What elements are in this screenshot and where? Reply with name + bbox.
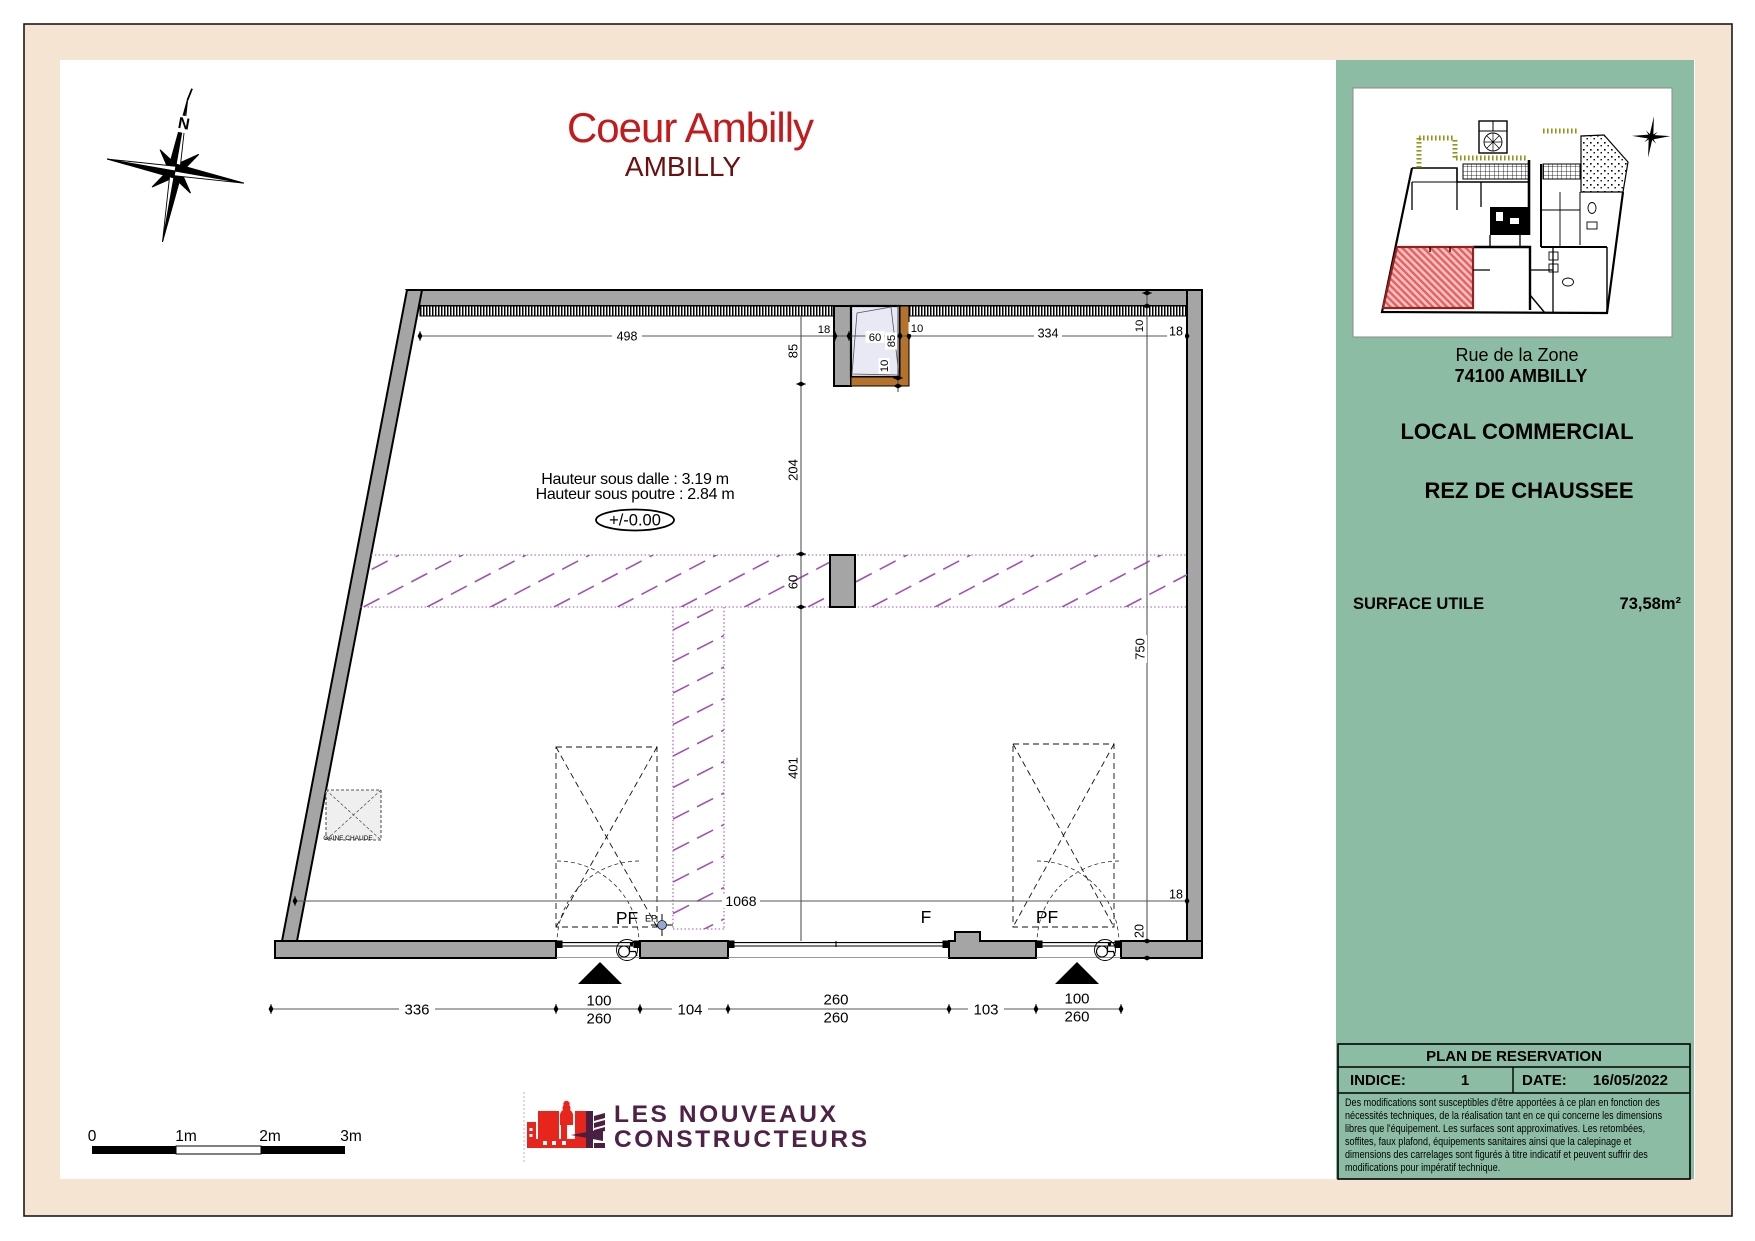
svg-text:PF: PF bbox=[1036, 907, 1058, 927]
svg-text:LOCAL COMMERCIAL: LOCAL COMMERCIAL bbox=[1400, 419, 1633, 444]
svg-text:334: 334 bbox=[1038, 326, 1059, 340]
svg-text:260: 260 bbox=[586, 1010, 611, 1027]
svg-text:18: 18 bbox=[1169, 887, 1183, 901]
svg-text:REZ DE CHAUSSEE: REZ DE CHAUSSEE bbox=[1424, 478, 1633, 503]
svg-text:10: 10 bbox=[911, 323, 924, 335]
svg-text:10: 10 bbox=[879, 360, 891, 373]
svg-text:260: 260 bbox=[823, 991, 848, 1008]
svg-text:INDICE:: INDICE: bbox=[1350, 1072, 1406, 1089]
svg-text:Hauteur sous poutre : 2.84 m: Hauteur sous poutre : 2.84 m bbox=[536, 486, 735, 503]
svg-text:401: 401 bbox=[786, 757, 801, 779]
svg-text:85: 85 bbox=[786, 344, 801, 358]
svg-text:PF: PF bbox=[616, 908, 638, 928]
svg-text:GAINE CHAUDE: GAINE CHAUDE bbox=[323, 835, 373, 842]
svg-text:18: 18 bbox=[818, 324, 831, 336]
svg-text:Coeur Ambilly: Coeur Ambilly bbox=[567, 104, 814, 151]
svg-text:498: 498 bbox=[617, 329, 638, 343]
svg-text:100: 100 bbox=[1064, 990, 1089, 1007]
svg-text:CONSTRUCTEURS: CONSTRUCTEURS bbox=[614, 1126, 870, 1153]
svg-text:104: 104 bbox=[677, 1001, 702, 1018]
svg-text:LES NOUVEAUX: LES NOUVEAUX bbox=[614, 1101, 839, 1128]
svg-text:2m: 2m bbox=[259, 1128, 281, 1145]
svg-text:16/05/2022: 16/05/2022 bbox=[1593, 1072, 1668, 1089]
svg-text:1068: 1068 bbox=[725, 893, 756, 909]
svg-text:3m: 3m bbox=[340, 1128, 362, 1145]
svg-text:103: 103 bbox=[973, 1001, 998, 1018]
svg-text:20: 20 bbox=[1132, 924, 1146, 938]
svg-text:+/-0.00: +/-0.00 bbox=[609, 512, 661, 530]
svg-text:PLAN DE RESERVATION: PLAN DE RESERVATION bbox=[1426, 1048, 1602, 1065]
svg-text:1: 1 bbox=[1461, 1072, 1469, 1089]
svg-text:F: F bbox=[921, 907, 932, 927]
svg-text:74100 AMBILLY: 74100 AMBILLY bbox=[1455, 366, 1588, 386]
svg-text:750: 750 bbox=[1133, 638, 1148, 660]
svg-text:EP: EP bbox=[645, 914, 657, 924]
svg-text:1m: 1m bbox=[175, 1128, 197, 1145]
svg-text:DATE:: DATE: bbox=[1522, 1072, 1567, 1089]
svg-text:336: 336 bbox=[404, 1001, 429, 1018]
svg-text:0: 0 bbox=[88, 1128, 97, 1145]
svg-text:100: 100 bbox=[586, 992, 611, 1009]
svg-text:AMBILLY: AMBILLY bbox=[625, 151, 742, 182]
svg-text:18: 18 bbox=[1169, 324, 1183, 338]
svg-text:85: 85 bbox=[886, 335, 898, 348]
svg-text:10: 10 bbox=[1134, 320, 1146, 333]
svg-text:73,58m²: 73,58m² bbox=[1620, 595, 1682, 613]
svg-text:260: 260 bbox=[823, 1009, 848, 1026]
svg-text:60: 60 bbox=[786, 575, 801, 589]
svg-text:204: 204 bbox=[786, 459, 801, 481]
svg-text:60: 60 bbox=[869, 332, 882, 344]
svg-text:SURFACE UTILE: SURFACE UTILE bbox=[1353, 595, 1484, 613]
svg-text:Rue de la Zone: Rue de la Zone bbox=[1455, 345, 1578, 365]
svg-text:260: 260 bbox=[1064, 1008, 1089, 1025]
